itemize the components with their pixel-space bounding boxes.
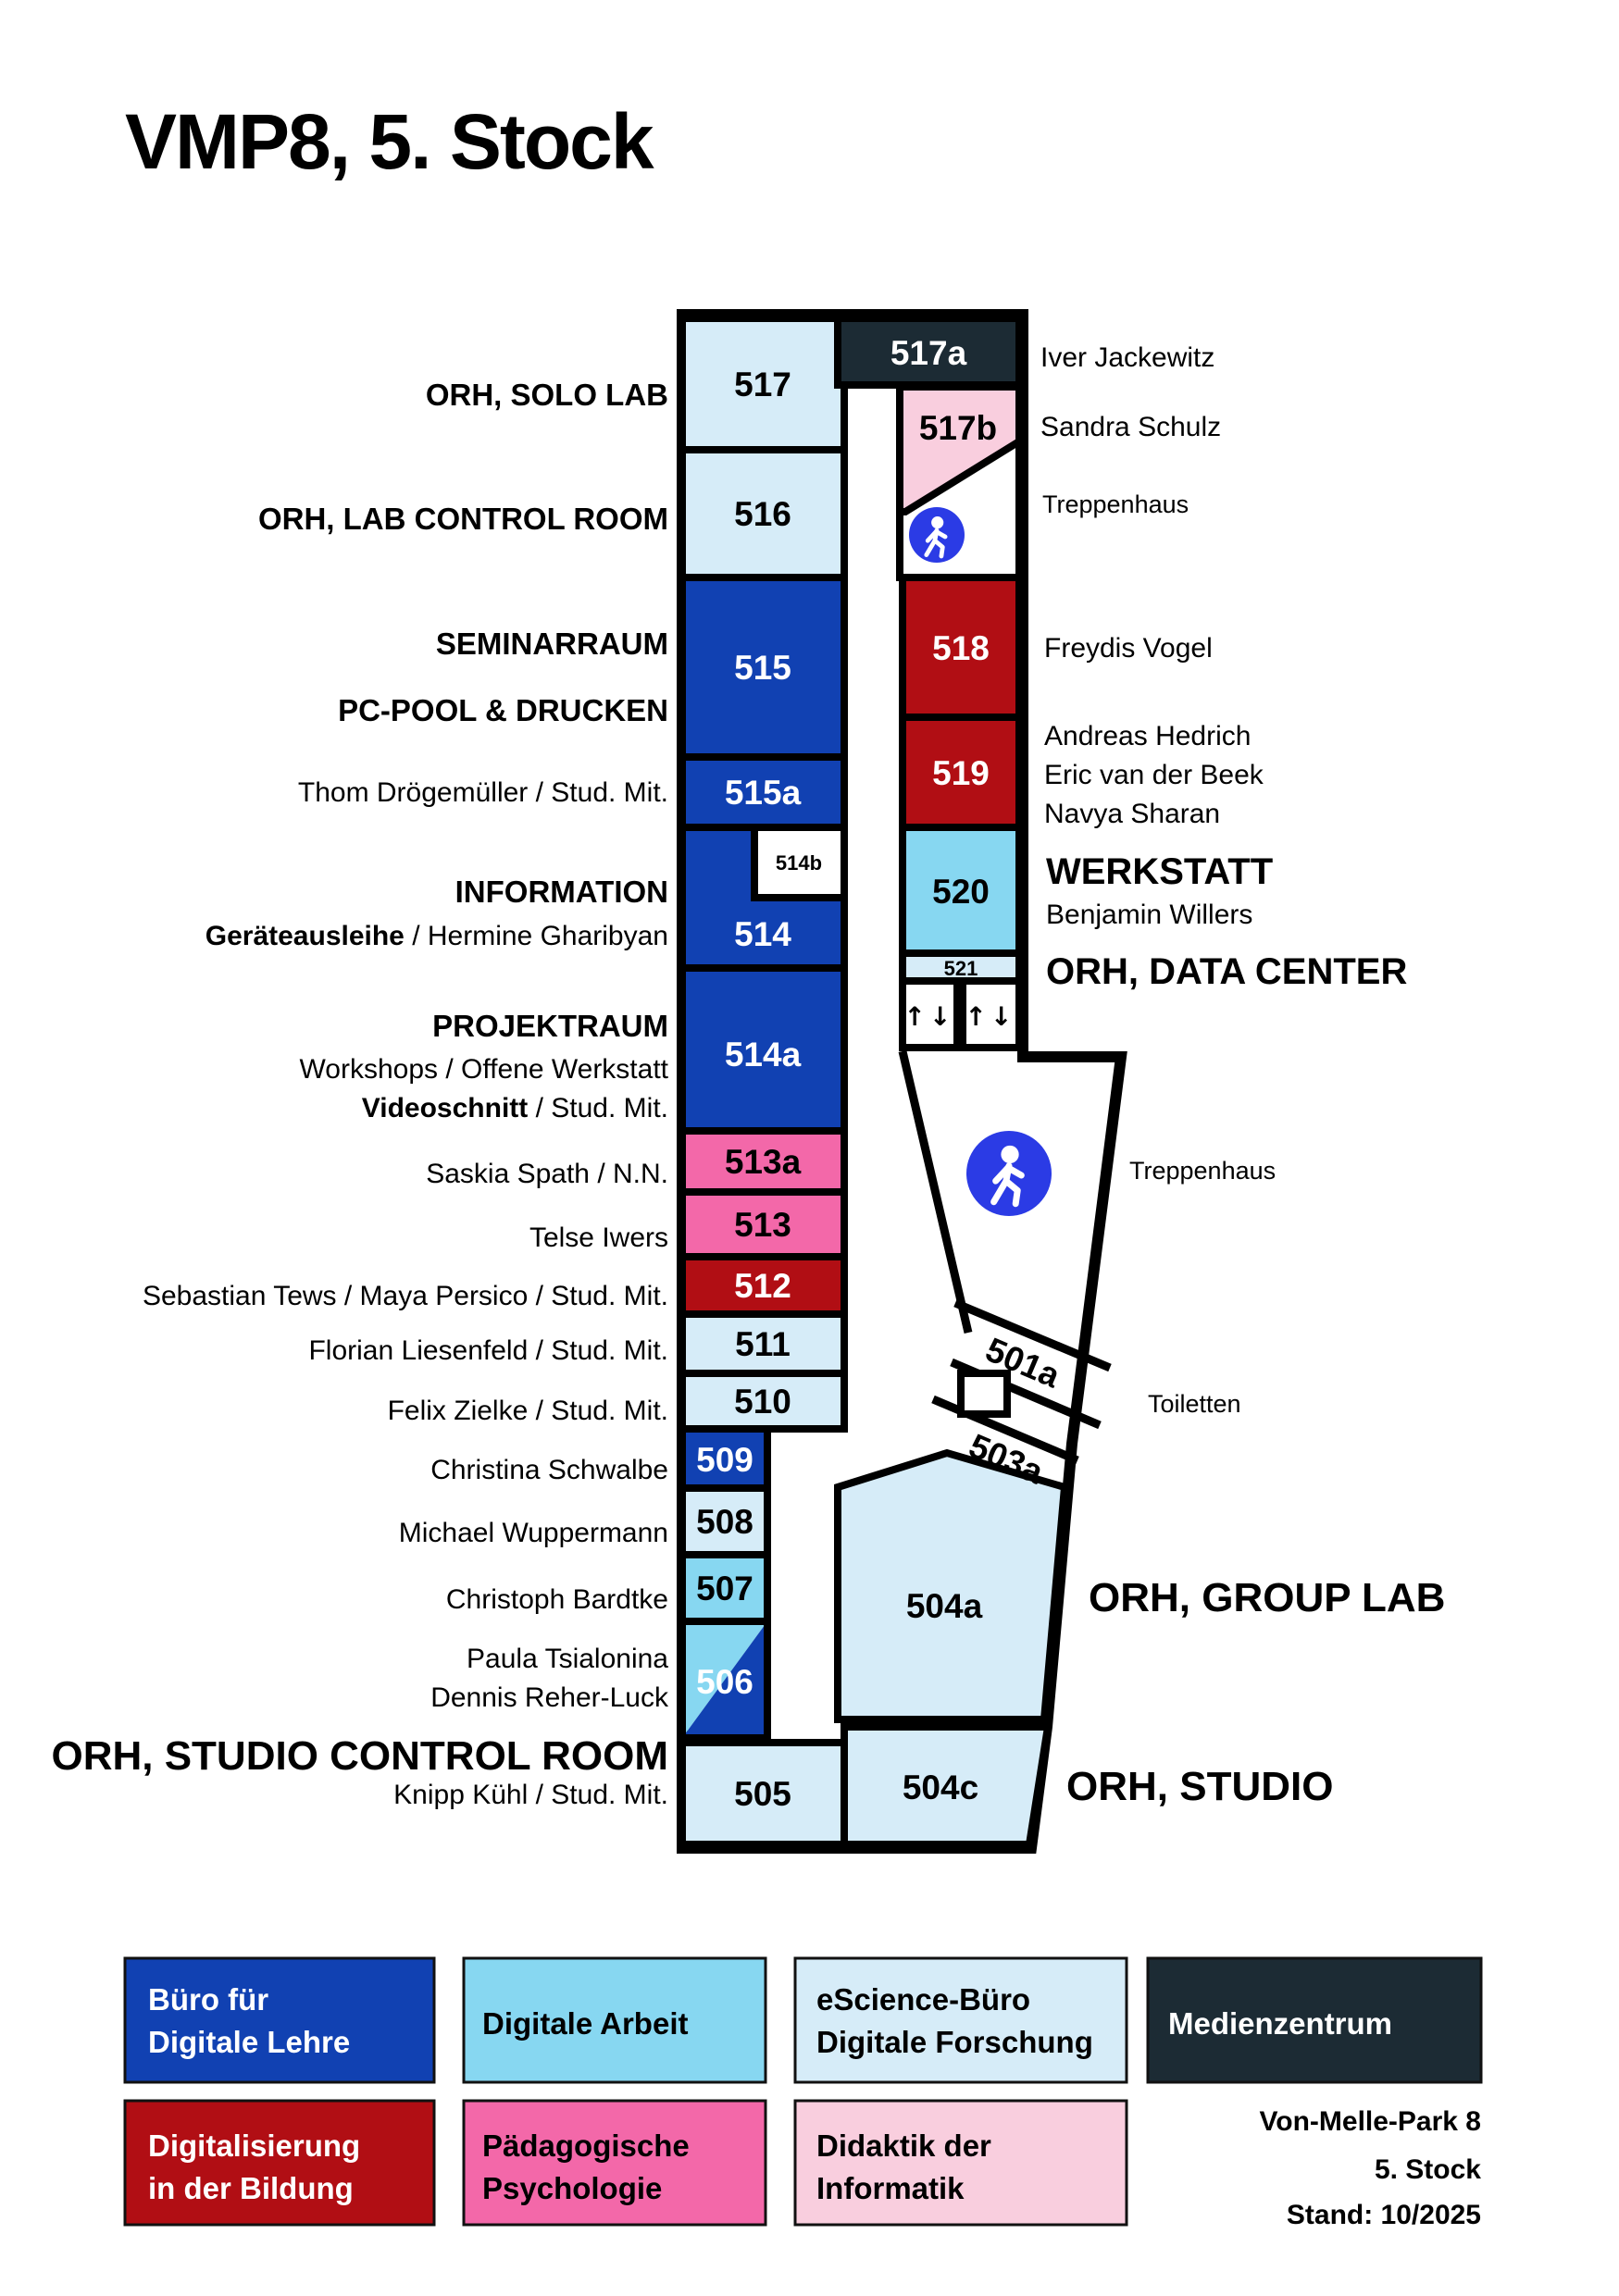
room-517b-label: 517b: [919, 409, 997, 447]
room-518-label: 518: [932, 629, 990, 667]
room-504a: [838, 1453, 1065, 1719]
left-label-column: ORH, SOLO LAB ORH, LAB CONTROL ROOM SEMI…: [51, 378, 669, 1810]
label-orh-solo-lab: ORH, SOLO LAB: [426, 378, 668, 412]
room-504c-label: 504c: [903, 1769, 978, 1806]
room-515a-label: 515a: [725, 774, 802, 812]
legend-swatch-escience: [795, 1958, 1127, 2082]
corridor-small-room: [961, 1373, 1007, 1414]
room-508-label: 508: [696, 1503, 753, 1541]
label-videoschnitt: Videoschnitt / Stud. Mit.: [362, 1093, 668, 1123]
room-514a-label: 514a: [725, 1036, 802, 1074]
label-treppenhaus-mid: Treppenhaus: [1129, 1157, 1276, 1185]
label-benjamin-willers: Benjamin Willers: [1046, 900, 1252, 930]
label-dennis-reher-luck: Dennis Reher-Luck: [430, 1682, 669, 1713]
label-paula-tsialonina: Paula Tsialonina: [467, 1644, 668, 1674]
floor-plan-svg: VMP8, 5. Stock 517 516 515: [0, 0, 1619, 2296]
room-519-label: 519: [932, 754, 990, 792]
label-geraeteausleihe: Geräteausleihe / Hermine Gharibyan: [205, 921, 668, 951]
legend-swatch-paedagogische-psychologie: [464, 2101, 766, 2225]
footer-stand: Stand: 10/2025: [1287, 2200, 1481, 2230]
legend-label-paed-line1: Pädagogische: [482, 2128, 690, 2163]
footer-floor: 5. Stock: [1375, 2154, 1481, 2185]
label-werkstatt: WERKSTATT: [1046, 851, 1273, 892]
legend-label-digitale-arbeit: Digitale Arbeit: [482, 2006, 688, 2041]
stairs-walk-icon-top: [909, 507, 965, 563]
legend-label-didaktik-line2: Informatik: [816, 2171, 965, 2205]
room-507-label: 507: [696, 1570, 753, 1607]
stairs-walk-icon-mid: [966, 1131, 1052, 1216]
room-513a-label: 513a: [725, 1143, 802, 1181]
label-thom-droegemueller: Thom Drögemüller / Stud. Mit.: [298, 777, 668, 808]
label-orh-group-lab: ORH, GROUP LAB: [1089, 1575, 1445, 1620]
legend: Büro für Digitale Lehre Digitale Arbeit …: [125, 1958, 1481, 2225]
label-saskia-spath: Saskia Spath / N.N.: [426, 1159, 668, 1189]
legend-label-escience-line2: Digitale Forschung: [816, 2025, 1093, 2059]
label-michael-wuppermann: Michael Wuppermann: [399, 1518, 668, 1548]
room-520-label: 520: [932, 873, 990, 911]
label-workshops: Workshops / Offene Werkstatt: [300, 1054, 669, 1085]
legend-label-buero-line1: Büro für: [148, 1982, 268, 2017]
room-515-label: 515: [734, 649, 791, 687]
room-505-label: 505: [734, 1775, 791, 1813]
label-pc-pool-drucken: PC-POOL & DRUCKEN: [338, 693, 668, 727]
room-521-label: 521: [944, 957, 978, 980]
legend-swatch-buero-digitale-lehre: [125, 1958, 434, 2082]
label-sandra-schulz: Sandra Schulz: [1040, 412, 1221, 442]
page-title: VMP8, 5. Stock: [125, 98, 654, 185]
elevator-left-arrows-icon: ↑↓: [904, 1001, 955, 1032]
footer: Von-Melle-Park 8 5. Stock Stand: 10/2025: [1259, 2106, 1481, 2230]
label-telse-iwers: Telse Iwers: [529, 1222, 668, 1253]
legend-label-didaktik-line1: Didaktik der: [816, 2128, 991, 2163]
label-information: INFORMATION: [455, 875, 668, 909]
room-510-label: 510: [734, 1383, 791, 1421]
label-navya-sharan: Navya Sharan: [1044, 799, 1220, 829]
room-509-label: 509: [696, 1441, 753, 1479]
room-517-label: 517: [734, 366, 791, 403]
room-513-label: 513: [734, 1206, 791, 1244]
label-orh-studio-control-room: ORH, STUDIO CONTROL ROOM: [51, 1733, 668, 1779]
room-511-label: 511: [735, 1325, 791, 1363]
legend-label-buero-line2: Digitale Lehre: [148, 2025, 350, 2059]
label-projektraum: PROJEKTRAUM: [432, 1009, 668, 1043]
label-orh-data-center: ORH, DATA CENTER: [1046, 951, 1407, 992]
room-514-label: 514: [734, 915, 791, 953]
footer-address: Von-Melle-Park 8: [1259, 2106, 1481, 2137]
legend-label-medienzentrum: Medienzentrum: [1168, 2006, 1392, 2041]
label-eric-van-der-beek: Eric van der Beek: [1044, 760, 1264, 790]
label-andreas-hedrich: Andreas Hedrich: [1044, 721, 1251, 751]
label-christina-schwalbe: Christina Schwalbe: [430, 1455, 668, 1485]
elevator-right-arrows-icon: ↑↓: [965, 1001, 1016, 1032]
legend-swatch-digitalisierung: [125, 2101, 434, 2225]
legend-label-digitalisierung-line2: in der Bildung: [148, 2171, 354, 2205]
legend-label-digitalisierung-line1: Digitalisierung: [148, 2128, 360, 2163]
label-christoph-bardtke: Christoph Bardtke: [446, 1584, 668, 1615]
label-orh-studio: ORH, STUDIO: [1066, 1764, 1333, 1809]
room-516-label: 516: [734, 495, 791, 533]
legend-swatch-didaktik-informatik: [795, 2101, 1127, 2225]
label-toiletten: Toiletten: [1148, 1390, 1241, 1418]
room-514b-label: 514b: [776, 851, 822, 875]
label-seminarraum: SEMINARRAUM: [436, 627, 668, 661]
room-512-label: 512: [734, 1267, 791, 1305]
label-orh-lab-control-room: ORH, LAB CONTROL ROOM: [258, 502, 668, 536]
label-iver-jackewitz: Iver Jackewitz: [1040, 342, 1214, 373]
room-517a-label: 517a: [890, 334, 967, 372]
label-felix-zielke: Felix Zielke / Stud. Mit.: [388, 1396, 668, 1426]
legend-label-paed-line2: Psychologie: [482, 2171, 662, 2205]
label-treppenhaus-top: Treppenhaus: [1042, 490, 1189, 518]
label-florian-liesenfeld: Florian Liesenfeld / Stud. Mit.: [308, 1335, 668, 1366]
label-knipp-kuehl: Knipp Kühl / Stud. Mit.: [393, 1780, 668, 1810]
room-506-label: 506: [696, 1663, 753, 1701]
label-freydis-vogel: Freydis Vogel: [1044, 633, 1213, 664]
room-504a-label: 504a: [906, 1587, 983, 1625]
label-sebastian-tews: Sebastian Tews / Maya Persico / Stud. Mi…: [143, 1281, 668, 1311]
legend-label-escience-line1: eScience-Büro: [816, 1982, 1030, 2017]
